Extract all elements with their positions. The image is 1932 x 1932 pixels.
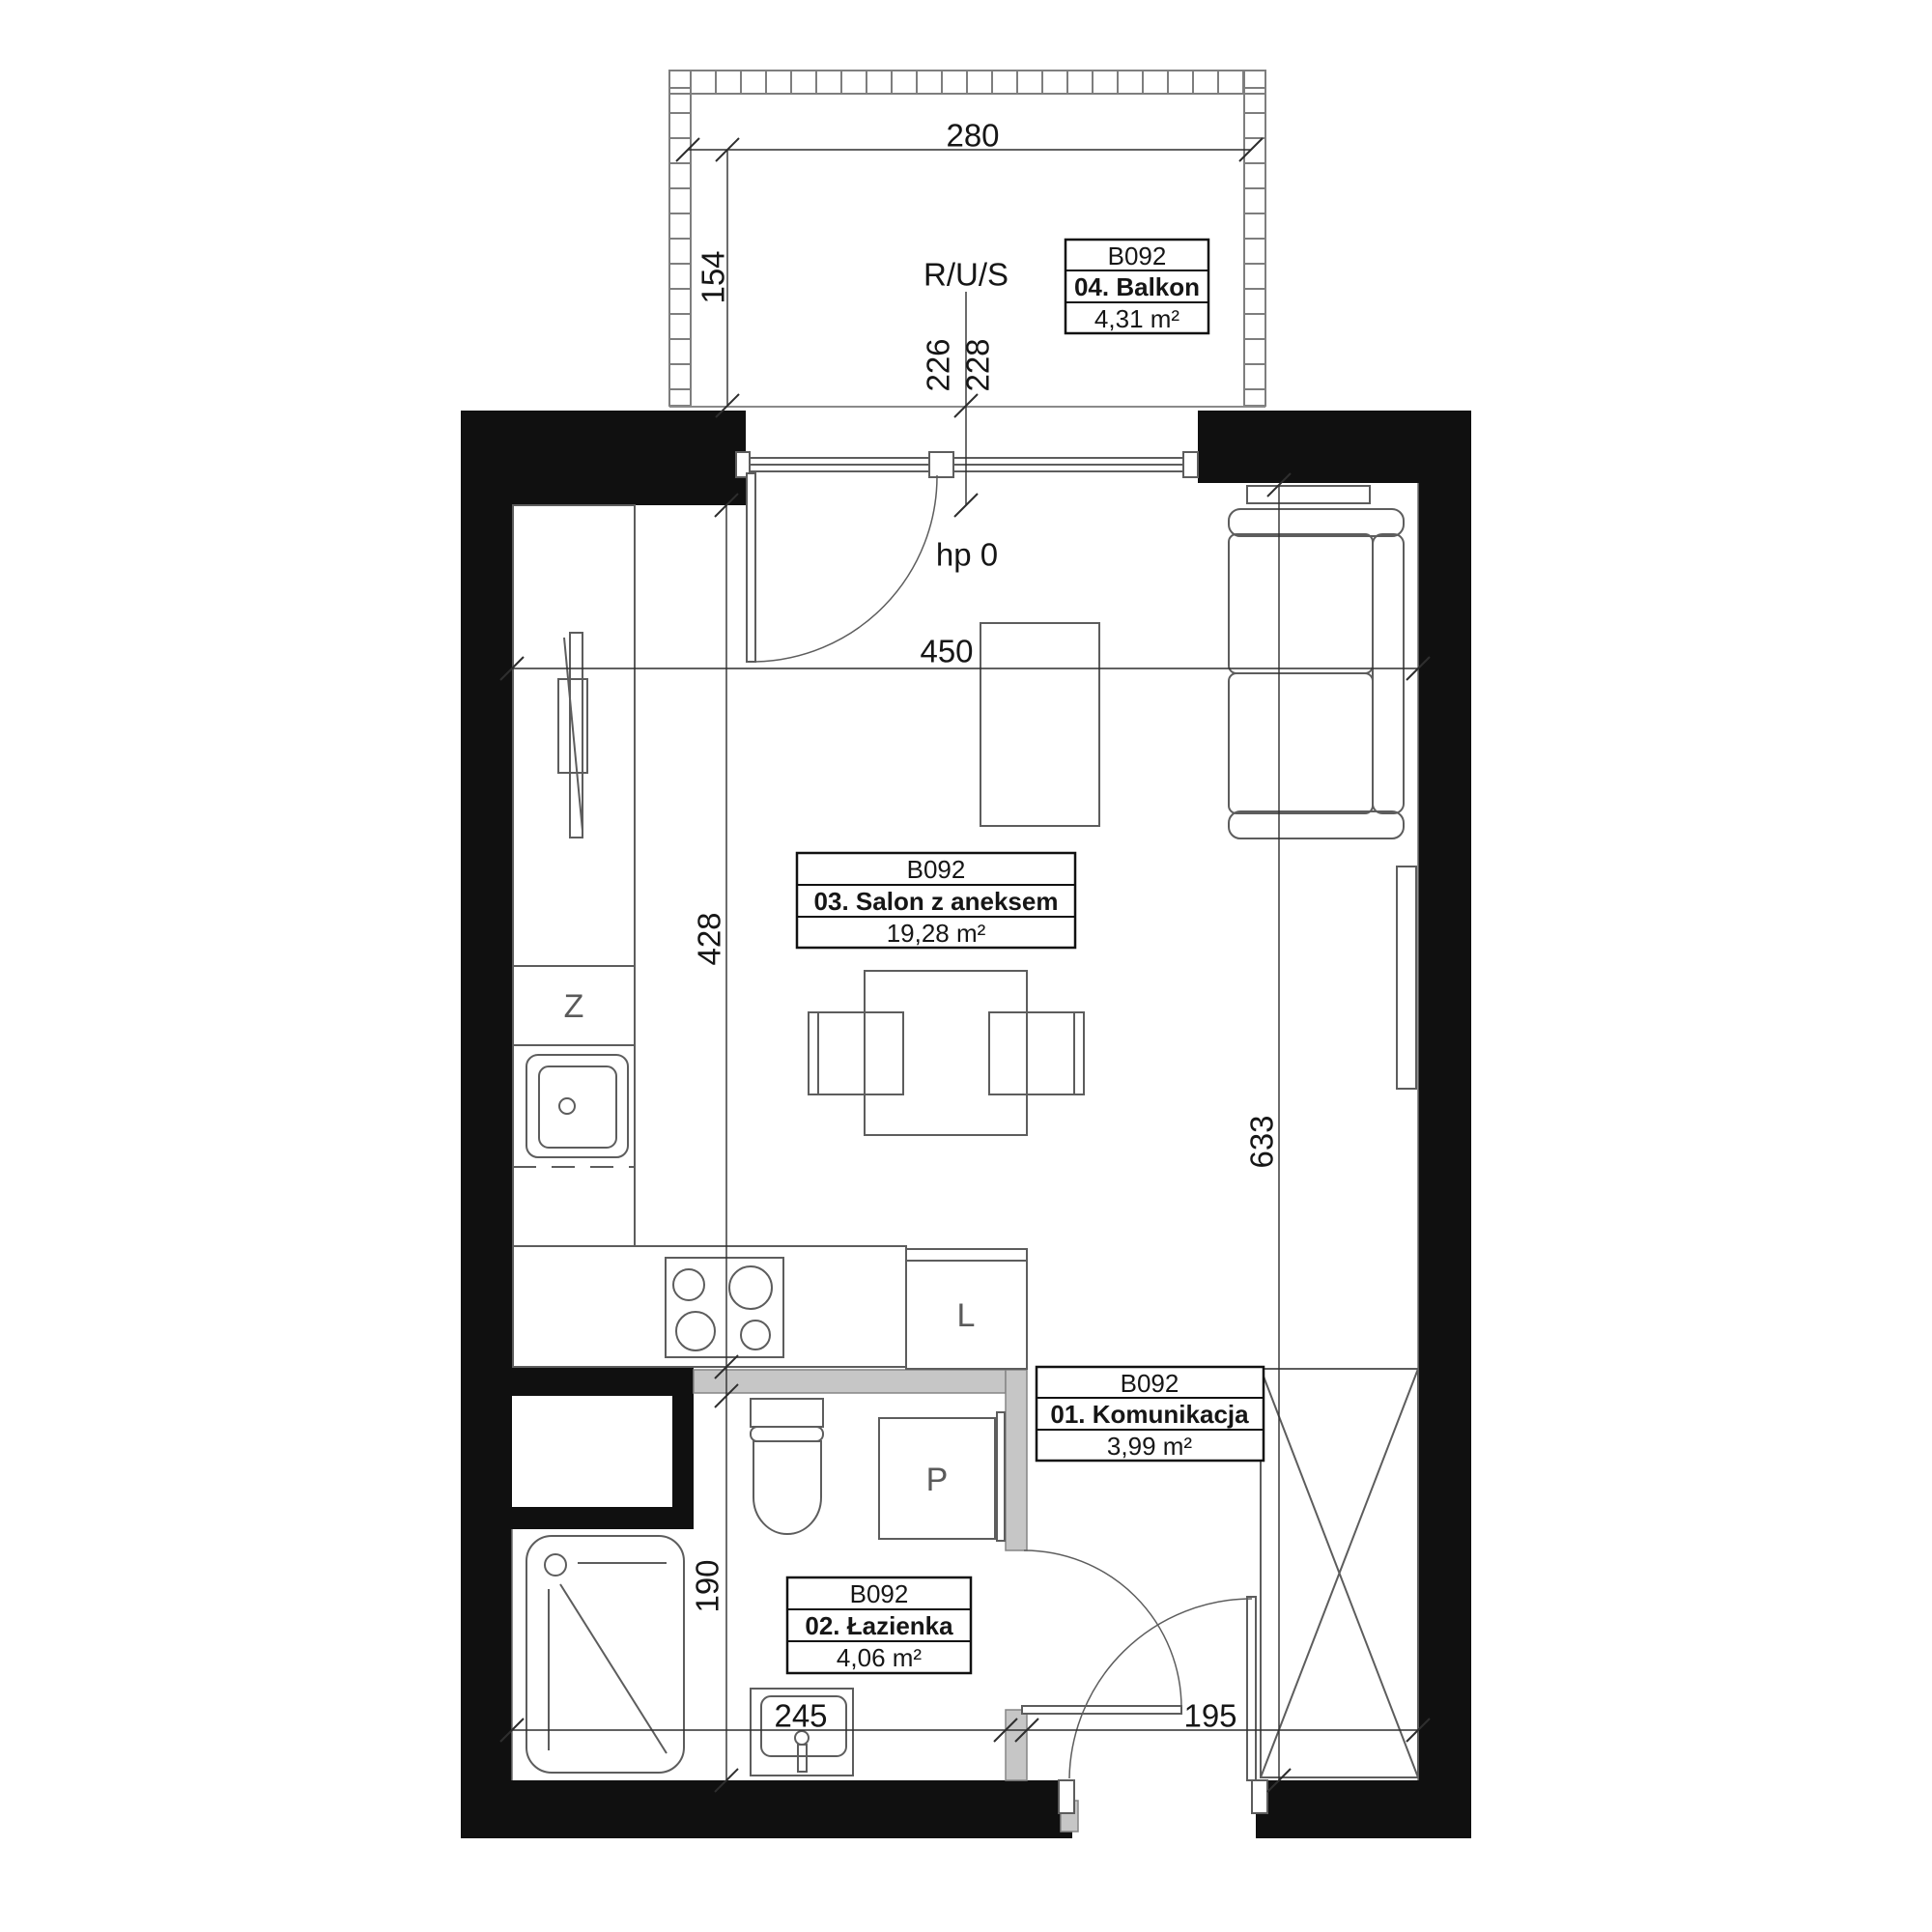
- appliance-fridge-label: L: [957, 1297, 976, 1334]
- room-id: B092: [907, 855, 966, 884]
- wall-bottom-left: [461, 1780, 1072, 1838]
- toilet: [751, 1399, 823, 1534]
- dim-428: 428: [692, 912, 727, 965]
- window-jamb-right: [1183, 452, 1198, 477]
- floor-plan-canvas: 280 154 226 228 450 428 633 190 245 195 …: [0, 0, 1932, 1932]
- room-name: 01. Komunikacja: [1050, 1400, 1249, 1429]
- wall-top-right: [1198, 411, 1471, 483]
- dim-226: 226: [921, 338, 956, 391]
- wardrobe: [1261, 1369, 1418, 1777]
- wall-right: [1418, 478, 1471, 1838]
- shower-drain: [545, 1554, 566, 1576]
- room-area: 4,06 m²: [837, 1643, 922, 1672]
- room-label-lazienka: B092 02. Łazienka 4,06 m²: [787, 1577, 971, 1673]
- room-label-komunikacja: B092 01. Komunikacja 3,99 m²: [1037, 1367, 1264, 1461]
- balcony-railing-right: [1244, 71, 1265, 406]
- balcony-door-leaf: [747, 473, 755, 662]
- hob-burner-2: [729, 1266, 772, 1309]
- balcony-door-swing-arc: [755, 475, 937, 662]
- dim-190: 190: [690, 1559, 725, 1612]
- window-mullion: [929, 452, 953, 477]
- room-id: B092: [1108, 241, 1167, 270]
- entrance-door-leaf: [1247, 1597, 1256, 1780]
- console-shelf: [1247, 486, 1370, 503]
- partition-bath-top: [694, 1370, 1006, 1393]
- dim-245: 245: [774, 1698, 827, 1734]
- toilet-bowl: [753, 1441, 821, 1534]
- bathroom-door-swing-arc: [1024, 1550, 1181, 1708]
- annotation-riser: R/U/S: [923, 257, 1009, 293]
- radiator-kitchen: [558, 633, 587, 838]
- bathroom-door: [1022, 1550, 1181, 1714]
- room-label-salon: B092 03. Salon z aneksem 19,28 m²: [797, 853, 1075, 948]
- sofa-seat-1: [1229, 534, 1373, 673]
- dim-228: 228: [960, 338, 996, 391]
- desk: [980, 623, 1099, 826]
- room-name: 02. Łazienka: [805, 1611, 953, 1640]
- kitchen-counter-bottom: [513, 1246, 906, 1367]
- salon-furniture: [809, 486, 1416, 1135]
- room-name: 03. Salon z aneksem: [814, 887, 1059, 916]
- bathroom-door-leaf: [1022, 1706, 1181, 1714]
- door-panel-stored: [997, 1412, 1005, 1541]
- wall-left: [461, 411, 512, 1838]
- dim-154: 154: [696, 250, 731, 303]
- room-area: 19,28 m²: [887, 919, 986, 948]
- dim-450: 450: [920, 634, 973, 669]
- toilet-seat-hinge: [751, 1427, 823, 1441]
- radiator-kitchen-diagonal: [564, 638, 582, 831]
- partition-bath-right-upper: [1006, 1370, 1027, 1550]
- sink-drain: [559, 1098, 575, 1114]
- chair-right-backrest: [1074, 1012, 1084, 1094]
- room-area: 3,99 m²: [1107, 1432, 1192, 1461]
- entrance-door-swing-arc: [1069, 1599, 1252, 1778]
- balcony-railing-top: [669, 71, 1265, 94]
- sofa: [1229, 509, 1404, 838]
- room-id: B092: [1121, 1369, 1179, 1398]
- annotation-sill-height: hp 0: [936, 537, 998, 573]
- balcony-window: [736, 452, 1198, 477]
- wall-shaft-top: [512, 1367, 694, 1396]
- dim-195: 195: [1183, 1698, 1236, 1734]
- chair-left-backrest: [809, 1012, 818, 1094]
- hob-burner-3: [676, 1312, 715, 1350]
- room-label-balkon: B092 04. Balkon 4,31 m²: [1065, 240, 1208, 333]
- sofa-armrest-top: [1229, 509, 1404, 536]
- balcony-railing-left: [669, 71, 691, 406]
- wall-top-left: [461, 411, 746, 505]
- balcony-door: [747, 473, 937, 662]
- chair-left: [809, 1012, 903, 1094]
- shower: [526, 1536, 684, 1773]
- dining-set: [809, 971, 1084, 1135]
- dining-table: [865, 971, 1027, 1135]
- shower-diagonal: [560, 1584, 667, 1753]
- appliance-washer-label: P: [926, 1462, 949, 1498]
- hob-burner-4: [741, 1321, 770, 1350]
- wall-bottom-right: [1256, 1780, 1471, 1838]
- sofa-armrest-bottom: [1229, 811, 1404, 838]
- kitchen-sink-inner: [539, 1066, 616, 1148]
- appliance-dishwasher-label: Z: [564, 988, 584, 1025]
- room-area: 4,31 m²: [1094, 304, 1179, 333]
- chair-right: [989, 1012, 1084, 1094]
- room-name: 04. Balkon: [1074, 272, 1200, 301]
- entrance-jamb-right: [1252, 1780, 1267, 1813]
- toilet-tank: [751, 1399, 823, 1427]
- hob-burner-1: [673, 1269, 704, 1300]
- entrance-jamb-left: [1059, 1780, 1074, 1813]
- dim-633: 633: [1244, 1115, 1280, 1168]
- sofa-backrest: [1373, 534, 1404, 813]
- dim-280: 280: [946, 118, 999, 154]
- wall-shaft-right: [672, 1396, 694, 1507]
- radiator-salon: [1397, 867, 1416, 1089]
- wall-shaft-bottom: [512, 1507, 694, 1529]
- washbasin-tap-body: [798, 1745, 807, 1772]
- sofa-seat-2: [1229, 673, 1373, 813]
- room-id: B092: [850, 1579, 909, 1608]
